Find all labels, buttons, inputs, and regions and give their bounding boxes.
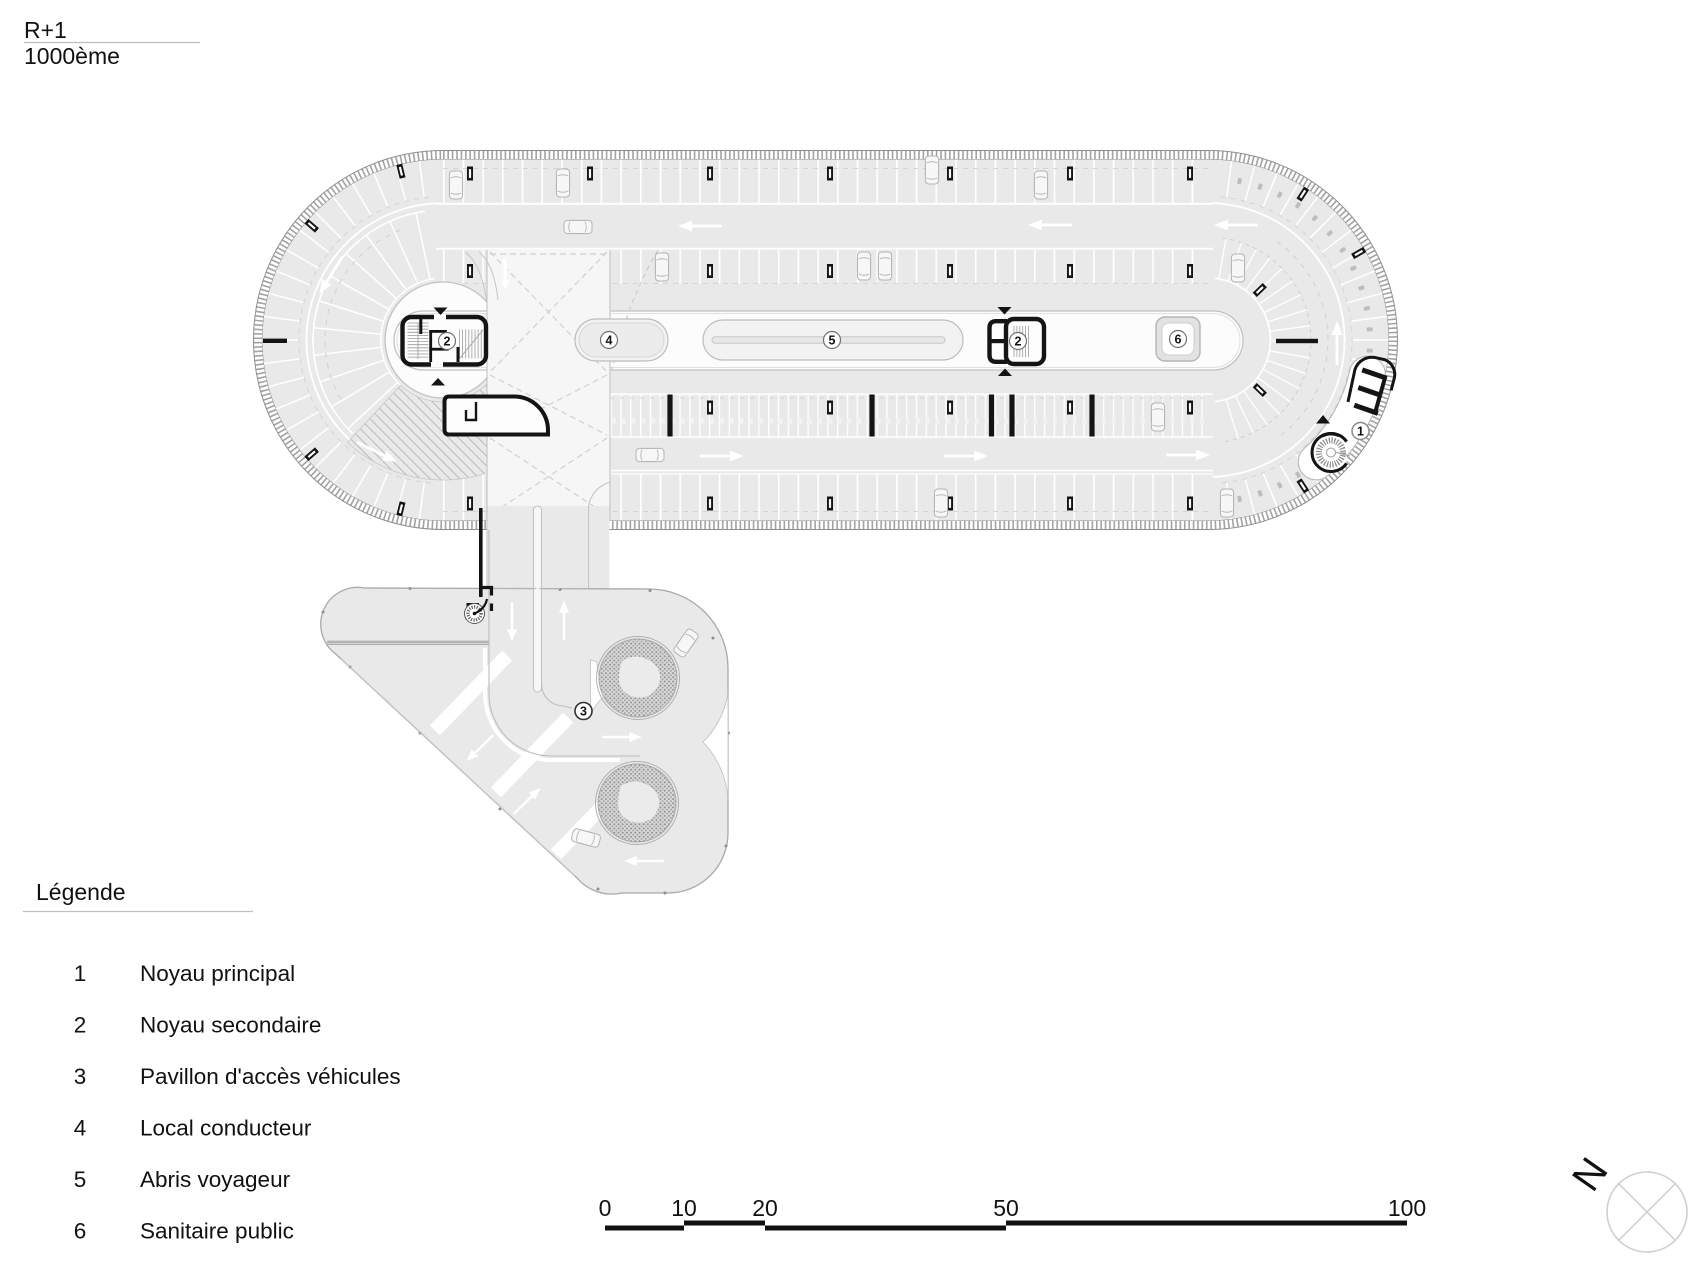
svg-text:6: 6 (1175, 332, 1182, 346)
svg-text:Local conducteur: Local conducteur (140, 1116, 312, 1141)
svg-text:3: 3 (74, 1064, 87, 1089)
svg-text:Pavillon d'accès véhicules: Pavillon d'accès véhicules (140, 1064, 401, 1089)
svg-text:0: 0 (599, 1195, 612, 1221)
svg-text:100: 100 (1388, 1195, 1426, 1221)
svg-text:1000ème: 1000ème (24, 43, 120, 69)
svg-text:20: 20 (752, 1195, 778, 1221)
svg-text:10: 10 (671, 1195, 697, 1221)
svg-text:4: 4 (606, 333, 613, 347)
svg-text:4: 4 (74, 1116, 87, 1141)
svg-text:1: 1 (1357, 424, 1364, 438)
svg-text:2: 2 (1015, 334, 1022, 348)
svg-text:5: 5 (829, 333, 836, 347)
svg-text:6: 6 (74, 1219, 87, 1244)
svg-text:3: 3 (580, 704, 587, 718)
svg-text:Noyau secondaire: Noyau secondaire (140, 1013, 321, 1038)
svg-text:5: 5 (74, 1167, 87, 1192)
svg-text:Noyau principal: Noyau principal (140, 961, 295, 986)
svg-text:Abris voyageur: Abris voyageur (140, 1167, 291, 1192)
svg-text:R+1: R+1 (24, 17, 67, 43)
svg-text:Sanitaire public: Sanitaire public (140, 1219, 294, 1244)
svg-text:Légende: Légende (36, 879, 126, 905)
svg-text:1: 1 (74, 961, 87, 986)
svg-text:2: 2 (444, 334, 451, 348)
svg-text:2: 2 (74, 1013, 87, 1038)
svg-text:N: N (1564, 1150, 1617, 1199)
svg-text:50: 50 (993, 1195, 1019, 1221)
